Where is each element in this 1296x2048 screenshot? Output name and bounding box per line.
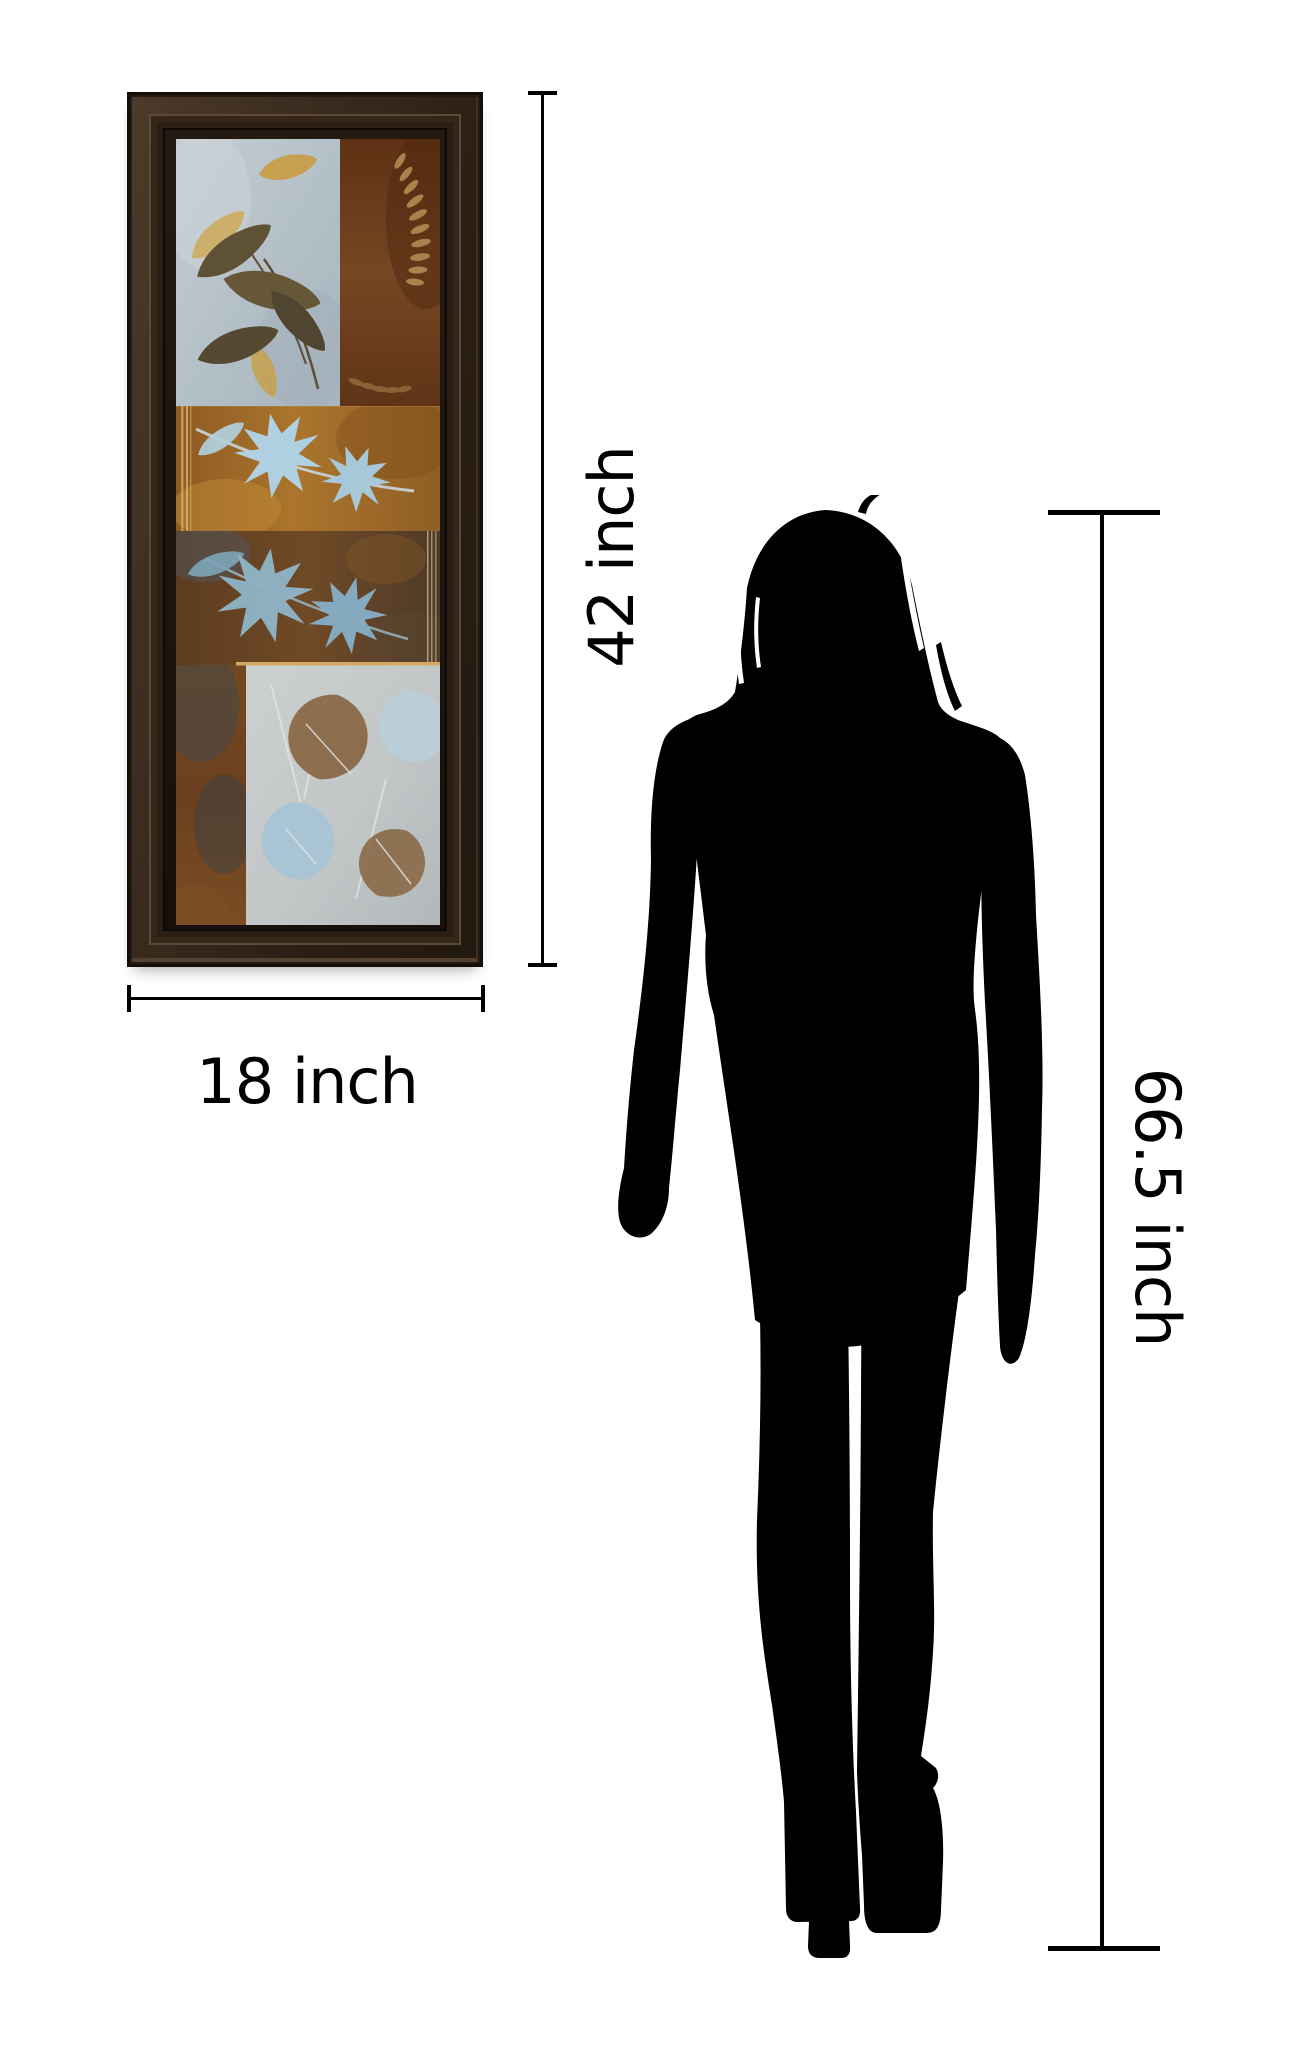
art-panel-top-left: [176, 139, 356, 409]
art-height-top-tick: [528, 91, 557, 95]
art-panel-rust-strip: [176, 646, 254, 925]
silhouette-left-arm: [618, 716, 700, 1237]
art-width-dimension-line: [129, 997, 483, 1000]
art-width-left-tick: [127, 985, 131, 1012]
art-panel-amber: [176, 399, 440, 539]
art-panel-mottled: [176, 526, 440, 676]
silhouette-front-leg: [757, 1255, 860, 1922]
art-height-dimension-line: [541, 93, 544, 966]
person-height-bottom-tick: [1048, 1946, 1160, 1951]
silhouette-body: [678, 510, 1000, 1347]
art-height-bottom-tick: [528, 963, 557, 967]
art-panel-silver: [246, 665, 440, 925]
art-canvas: [176, 139, 440, 925]
person-height-top-tick: [1048, 510, 1160, 515]
art-width-label: 18 inch: [196, 1051, 418, 1113]
framed-artwork: [127, 92, 483, 967]
silhouette-back-leg: [857, 1255, 963, 1933]
leaf-collage-art: [176, 139, 440, 925]
gold-separator: [236, 662, 440, 666]
art-panel-top-right: [340, 139, 440, 406]
woman-silhouette: [600, 495, 1060, 1965]
person-height-dimension-line: [1100, 513, 1104, 1949]
product-dimension-image: 42 inch 18 inch 66.5 inch: [0, 0, 1296, 2048]
person-height-label: 66.5 inch: [1126, 1068, 1188, 1347]
art-width-right-tick: [481, 985, 485, 1012]
silhouette-right-arm: [981, 738, 1042, 1364]
